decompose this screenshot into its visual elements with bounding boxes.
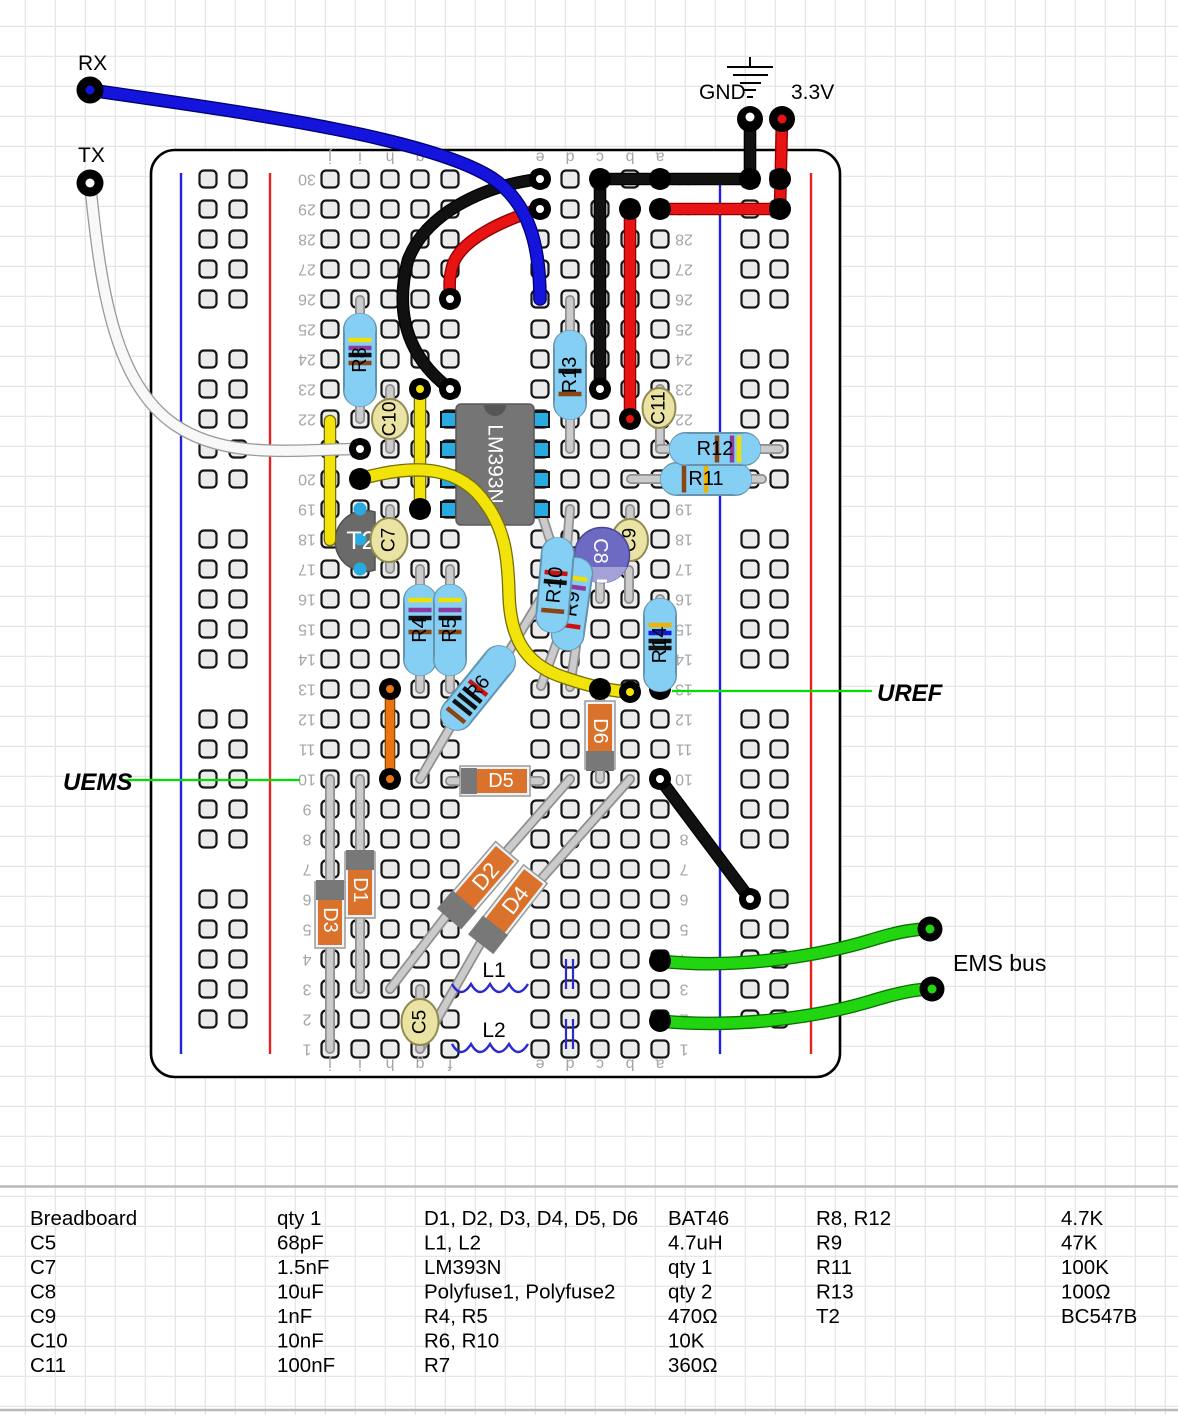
svg-text:TX: TX	[78, 144, 105, 167]
svg-text:R14: R14	[649, 627, 671, 664]
svg-text:10: 10	[298, 771, 316, 788]
svg-text:27: 27	[298, 261, 316, 278]
svg-text:18: 18	[298, 531, 316, 548]
svg-text:18: 18	[675, 531, 693, 548]
svg-text:C11: C11	[30, 1354, 66, 1377]
svg-text:8: 8	[679, 831, 688, 848]
svg-text:L2: L2	[482, 1019, 505, 1042]
svg-text:C9: C9	[30, 1305, 56, 1328]
svg-text:C7: C7	[379, 528, 400, 552]
svg-text:8: 8	[302, 831, 311, 848]
svg-text:qty 2: qty 2	[668, 1281, 712, 1304]
svg-text:D1: D1	[349, 877, 371, 903]
svg-text:R4, R5: R4, R5	[424, 1305, 488, 1328]
svg-text:10nF: 10nF	[277, 1330, 324, 1353]
svg-text:28: 28	[675, 231, 693, 248]
svg-text:h: h	[386, 149, 395, 166]
svg-text:R11: R11	[688, 468, 723, 490]
svg-text:28: 28	[298, 231, 316, 248]
svg-text:6: 6	[679, 891, 688, 908]
svg-text:15: 15	[675, 621, 693, 638]
svg-text:25: 25	[298, 321, 316, 338]
svg-text:23: 23	[298, 381, 316, 398]
svg-text:C8: C8	[30, 1281, 56, 1304]
svg-text:C10: C10	[380, 402, 401, 437]
svg-text:i: i	[358, 1056, 362, 1073]
svg-text:4.7K: 4.7K	[1061, 1207, 1103, 1230]
svg-text:100Ω: 100Ω	[1061, 1281, 1111, 1304]
svg-text:6: 6	[302, 891, 311, 908]
svg-text:C10: C10	[30, 1330, 68, 1353]
svg-text:f: f	[447, 1056, 452, 1073]
svg-text:1.5nF: 1.5nF	[277, 1256, 329, 1279]
svg-text:12: 12	[675, 711, 693, 728]
svg-text:LM393N: LM393N	[484, 424, 507, 503]
svg-text:10: 10	[675, 771, 693, 788]
svg-text:100K: 100K	[1061, 1256, 1109, 1279]
svg-text:R4: R4	[409, 617, 431, 643]
svg-text:13: 13	[675, 681, 693, 698]
svg-text:UEMS: UEMS	[63, 769, 132, 796]
svg-text:e: e	[535, 149, 544, 166]
svg-text:1nF: 1nF	[277, 1305, 312, 1328]
svg-text:20: 20	[298, 471, 316, 488]
svg-text:b: b	[625, 149, 634, 166]
svg-text:D6: D6	[589, 718, 611, 744]
svg-text:R12: R12	[697, 438, 734, 460]
svg-text:1: 1	[679, 1041, 688, 1058]
svg-text:12: 12	[298, 711, 316, 728]
svg-text:EMS bus: EMS bus	[953, 950, 1046, 976]
svg-text:L1, L2: L1, L2	[424, 1232, 481, 1255]
svg-text:26: 26	[675, 291, 693, 308]
svg-text:D5: D5	[488, 770, 514, 792]
svg-text:19: 19	[298, 501, 316, 518]
svg-text:23: 23	[675, 381, 693, 398]
svg-text:15: 15	[298, 621, 316, 638]
svg-text:4.7uH: 4.7uH	[668, 1232, 723, 1255]
svg-text:R13: R13	[816, 1281, 854, 1304]
svg-text:7: 7	[679, 861, 688, 878]
svg-text:g: g	[416, 1056, 425, 1073]
svg-text:22: 22	[675, 411, 693, 428]
svg-text:27: 27	[675, 261, 693, 278]
svg-text:11: 11	[299, 741, 316, 758]
svg-text:10K: 10K	[668, 1330, 705, 1353]
svg-text:C8: C8	[589, 538, 611, 564]
svg-text:LM393N: LM393N	[424, 1256, 502, 1279]
svg-text:5: 5	[302, 921, 311, 938]
svg-text:9: 9	[302, 801, 311, 818]
svg-text:22: 22	[298, 411, 316, 428]
svg-text:a: a	[655, 149, 664, 166]
svg-text:BAT46: BAT46	[668, 1207, 729, 1230]
svg-text:11: 11	[676, 741, 693, 758]
svg-text:19: 19	[675, 501, 693, 518]
svg-text:26: 26	[298, 291, 316, 308]
svg-text:30: 30	[298, 171, 316, 188]
svg-text:25: 25	[675, 321, 693, 338]
svg-text:e: e	[535, 1056, 544, 1073]
svg-text:i: i	[358, 149, 362, 166]
svg-text:C11: C11	[649, 391, 670, 424]
svg-text:j: j	[328, 149, 333, 166]
svg-text:3.3V: 3.3V	[791, 81, 834, 104]
svg-text:T2: T2	[816, 1305, 840, 1328]
svg-text:29: 29	[298, 201, 316, 218]
svg-text:3: 3	[302, 981, 311, 998]
svg-text:qty 1: qty 1	[277, 1207, 321, 1230]
svg-text:R5: R5	[439, 617, 461, 643]
svg-text:b: b	[625, 1056, 634, 1073]
svg-text:C5: C5	[30, 1232, 56, 1255]
svg-text:5: 5	[679, 921, 688, 938]
svg-text:17: 17	[675, 561, 693, 578]
svg-text:2: 2	[302, 1011, 311, 1028]
svg-text:4: 4	[302, 951, 311, 968]
svg-text:RX: RX	[78, 52, 107, 75]
svg-text:h: h	[386, 1056, 395, 1073]
svg-text:R8, R12: R8, R12	[816, 1207, 891, 1230]
svg-text:7: 7	[302, 861, 311, 878]
svg-text:d: d	[566, 1056, 575, 1073]
svg-text:100nF: 100nF	[277, 1354, 335, 1377]
svg-text:UREF: UREF	[877, 680, 944, 707]
svg-text:R11: R11	[816, 1256, 852, 1279]
svg-text:R13: R13	[559, 357, 581, 394]
svg-text:16: 16	[675, 591, 693, 608]
svg-text:360Ω: 360Ω	[668, 1354, 718, 1377]
svg-text:L1: L1	[482, 959, 505, 982]
svg-text:Breadboard: Breadboard	[30, 1207, 137, 1230]
svg-text:13: 13	[298, 681, 316, 698]
svg-text:R9: R9	[816, 1232, 842, 1255]
svg-text:Polyfuse1, Polyfuse2: Polyfuse1, Polyfuse2	[424, 1281, 615, 1304]
svg-text:d: d	[566, 149, 575, 166]
svg-text:R7: R7	[424, 1354, 450, 1377]
svg-text:470Ω: 470Ω	[668, 1305, 718, 1328]
svg-text:D3: D3	[319, 907, 341, 933]
svg-text:C7: C7	[30, 1256, 56, 1279]
svg-text:14: 14	[298, 651, 316, 668]
svg-text:c: c	[596, 1056, 604, 1073]
svg-text:GND: GND	[699, 81, 746, 104]
svg-text:R6, R10: R6, R10	[424, 1330, 499, 1353]
svg-text:C5: C5	[410, 1010, 431, 1034]
svg-text:c: c	[596, 149, 604, 166]
svg-text:16: 16	[298, 591, 316, 608]
svg-text:3: 3	[679, 981, 688, 998]
svg-text:14: 14	[675, 651, 693, 668]
svg-text:R8: R8	[349, 347, 371, 373]
svg-text:47K: 47K	[1061, 1232, 1098, 1255]
svg-text:10uF: 10uF	[277, 1281, 324, 1304]
svg-text:24: 24	[298, 351, 316, 368]
svg-text:j: j	[328, 1056, 333, 1073]
svg-text:D1, D2, D3, D4, D5, D6: D1, D2, D3, D4, D5, D6	[424, 1207, 638, 1230]
svg-text:68pF: 68pF	[277, 1232, 324, 1255]
svg-text:BC547B: BC547B	[1061, 1305, 1137, 1328]
svg-text:qty 1: qty 1	[668, 1256, 712, 1279]
svg-text:17: 17	[298, 561, 316, 578]
svg-text:1: 1	[302, 1041, 311, 1058]
svg-text:a: a	[655, 1056, 664, 1073]
svg-text:R10: R10	[542, 566, 567, 604]
svg-text:24: 24	[675, 351, 693, 368]
